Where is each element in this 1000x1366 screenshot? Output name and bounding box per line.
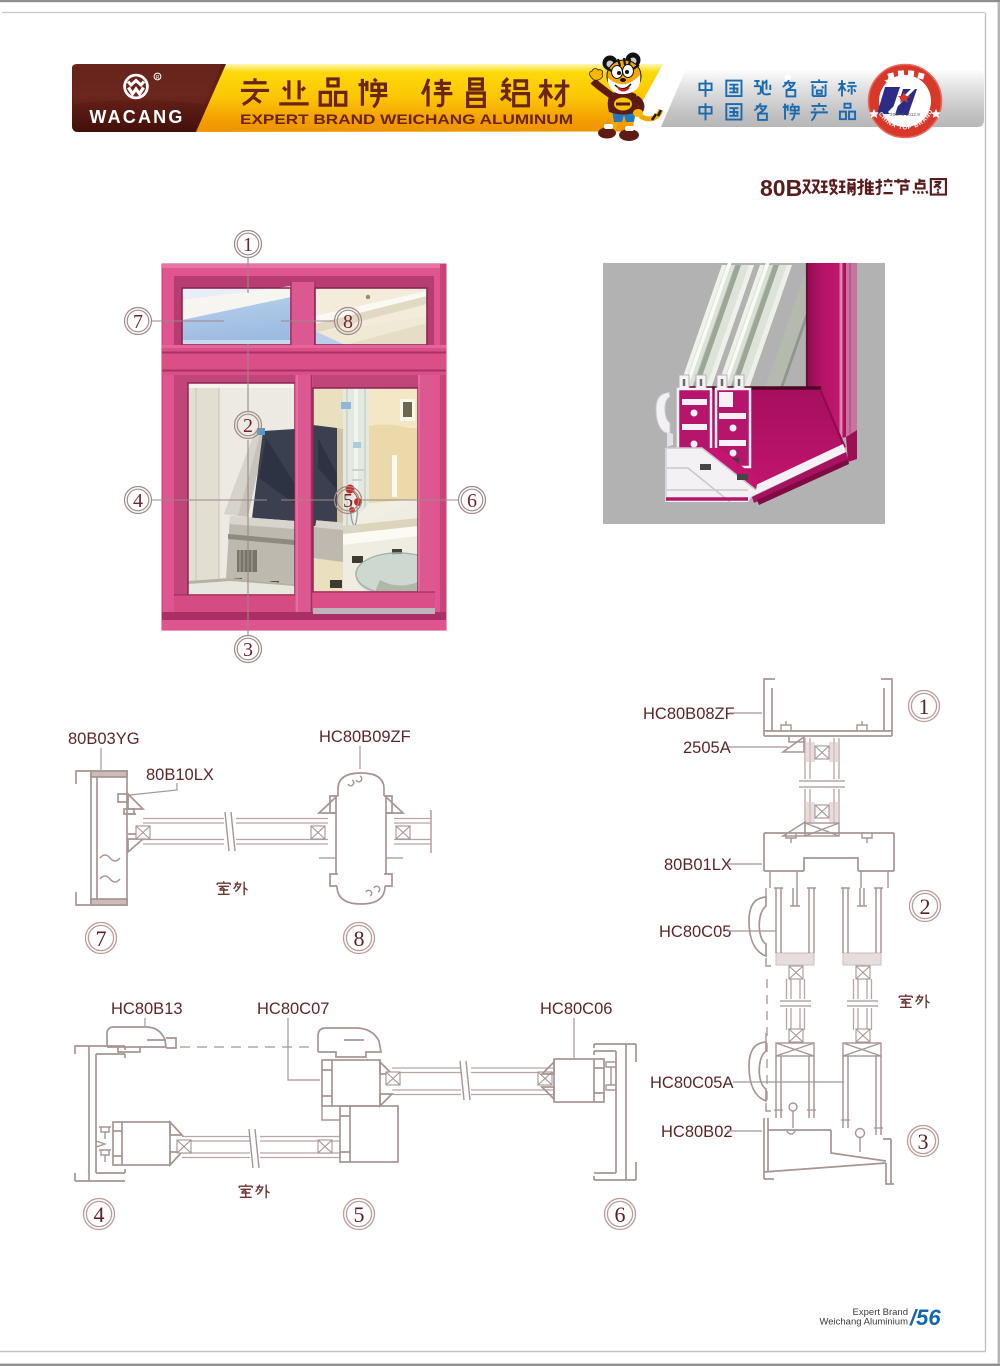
svg-text:HC80C05A: HC80C05A bbox=[650, 1074, 733, 1092]
svg-text:4: 4 bbox=[94, 1202, 105, 1227]
svg-text:2: 2 bbox=[243, 415, 253, 437]
svg-text:80B: 80B bbox=[760, 175, 802, 201]
svg-text:80B03YG: 80B03YG bbox=[68, 730, 140, 748]
svg-text:2505A: 2505A bbox=[683, 739, 731, 757]
svg-text:6: 6 bbox=[615, 1202, 626, 1227]
svg-text:5: 5 bbox=[354, 1202, 365, 1227]
svg-text:1: 1 bbox=[919, 694, 930, 719]
svg-text:HC80C07: HC80C07 bbox=[257, 1000, 329, 1018]
svg-text:HC80B02: HC80B02 bbox=[661, 1123, 733, 1141]
svg-text:2: 2 bbox=[920, 894, 931, 919]
svg-text:3: 3 bbox=[243, 639, 253, 661]
svg-text:2007.9-2012.9: 2007.9-2012.9 bbox=[890, 112, 920, 117]
svg-text:7: 7 bbox=[133, 311, 143, 333]
svg-text:HC80C05: HC80C05 bbox=[659, 923, 731, 941]
svg-text:/56: /56 bbox=[909, 1305, 941, 1330]
svg-text:6: 6 bbox=[467, 490, 477, 512]
svg-text:4: 4 bbox=[133, 490, 143, 512]
svg-text:80B01LX: 80B01LX bbox=[664, 856, 732, 874]
svg-text:5: 5 bbox=[343, 490, 353, 512]
svg-text:1: 1 bbox=[243, 234, 253, 256]
svg-text:80B10LX: 80B10LX bbox=[146, 766, 214, 784]
svg-text:3: 3 bbox=[918, 1129, 929, 1154]
svg-text:R: R bbox=[156, 75, 160, 81]
svg-text:EXPERT BRAND WEICHANG ALUMINUM: EXPERT BRAND WEICHANG ALUMINUM bbox=[240, 111, 573, 127]
svg-text:HC80B09ZF: HC80B09ZF bbox=[319, 728, 411, 746]
svg-text:8: 8 bbox=[343, 311, 353, 333]
svg-text:HC80B13: HC80B13 bbox=[111, 1000, 183, 1018]
svg-text:HC80B08ZF: HC80B08ZF bbox=[643, 705, 735, 723]
svg-text:WACANG: WACANG bbox=[89, 107, 184, 127]
svg-text:Weichang Aluminium: Weichang Aluminium bbox=[819, 1317, 908, 1328]
svg-text:HC80C06: HC80C06 bbox=[540, 1000, 612, 1018]
svg-text:8: 8 bbox=[354, 926, 365, 951]
svg-text:7: 7 bbox=[96, 926, 107, 951]
